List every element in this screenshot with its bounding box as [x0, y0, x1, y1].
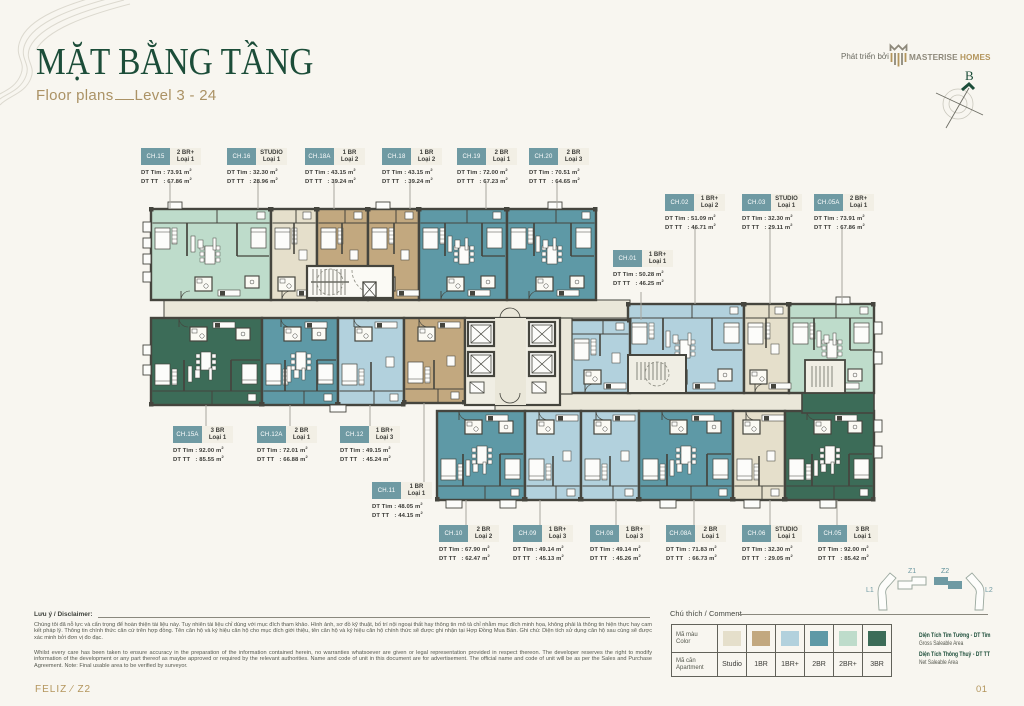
svg-text:L2: L2 — [985, 587, 993, 594]
svg-text:L1: L1 — [866, 587, 874, 594]
svg-text:B: B — [965, 68, 974, 83]
svg-text:Z2: Z2 — [941, 568, 949, 575]
svg-text:Z1: Z1 — [908, 568, 916, 575]
